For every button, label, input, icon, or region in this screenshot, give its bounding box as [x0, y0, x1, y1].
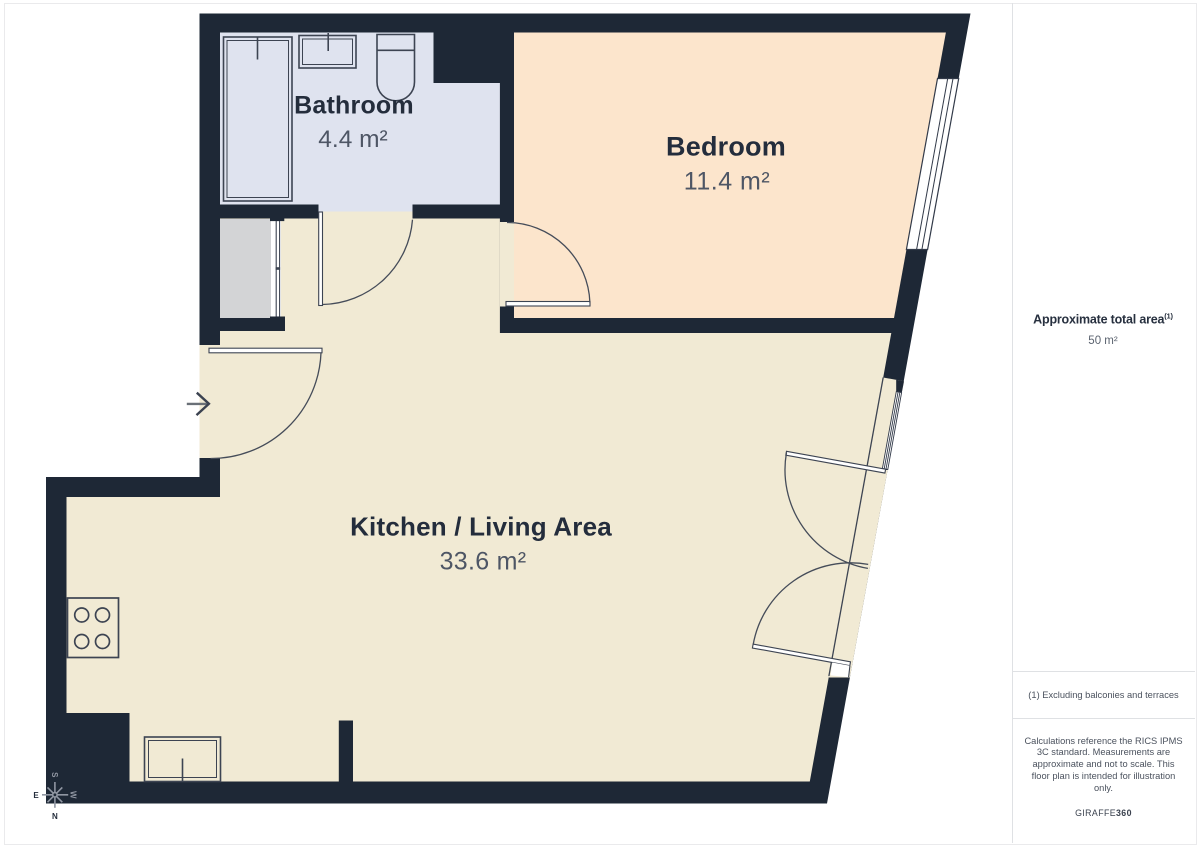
- svg-text:N: N: [52, 812, 58, 821]
- svg-text:E: E: [33, 791, 39, 800]
- svg-text:W: W: [68, 791, 77, 799]
- svg-text:S: S: [50, 772, 59, 778]
